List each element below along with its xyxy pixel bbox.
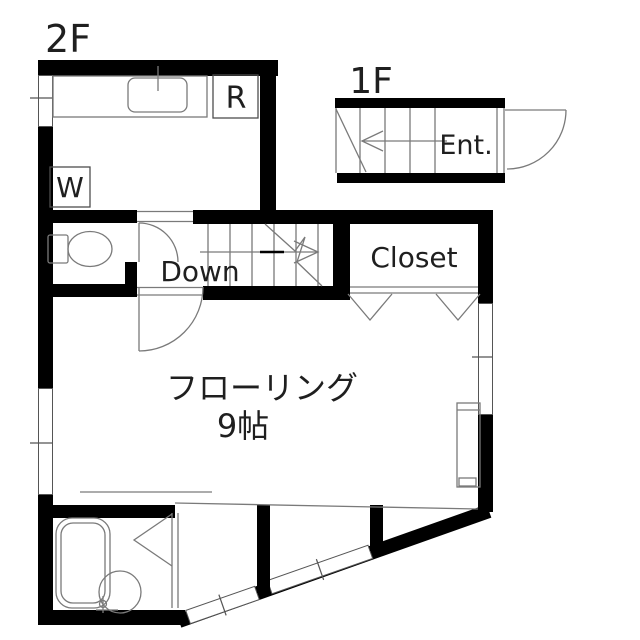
main-room-size: 9帖 [217,407,269,445]
wall-left [38,60,53,625]
window-bay-left [184,583,260,628]
window-right [472,304,493,415]
toilet-room [48,223,178,267]
folding-door-icon [134,514,172,566]
wall-stair-bottom [203,286,350,300]
bathroom [56,513,178,613]
entrance-label: Ent. [439,130,492,161]
wall-kitchen-right [260,60,276,222]
closet-label: Closet [370,241,457,274]
main-room-name: フローリング [166,369,358,407]
main-room [80,403,480,509]
stairs-down-label: Down [160,255,239,288]
floor-label-2f: 2F [45,17,91,61]
wall-bathroom-top [38,505,175,518]
bathtub-outer [56,518,110,608]
window-bay-right [266,542,374,598]
wall-bathroom-bottom [38,610,185,625]
bay-boundary-line [175,503,478,509]
wall-panel-unit [457,403,480,487]
window-left-lower [30,389,53,495]
washer-label: W [56,171,84,204]
refrigerator-label: R [226,81,247,116]
entrance-break-line [336,109,366,172]
bifold-door-icon-left [348,294,392,320]
bathroom-faucet-icon [96,596,118,613]
wall-bay-stub-left [257,505,270,593]
toilet-bowl [68,232,112,267]
wall-toilet-top [38,210,137,223]
room-door-arc [139,287,203,351]
floor-label-1f: 1F [349,61,393,102]
entrance-door-arc [507,110,566,169]
floor-plan-canvas: 2F 1F R W Down Ent. Closet フローリング 9帖 [0,0,640,640]
wall-bay-stub-right [370,505,383,551]
window-left-upper [30,76,53,127]
bifold-door-icon-right [436,294,480,320]
wall-toilet-bottom [38,284,137,297]
closet [348,287,480,320]
entrance-wall-bottom [337,173,505,183]
